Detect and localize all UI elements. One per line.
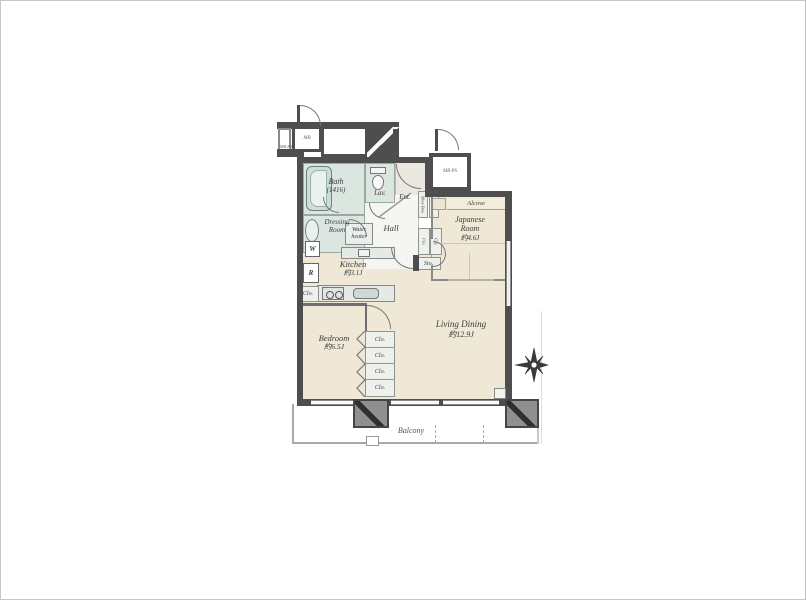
bedroom-size: 約6.5J [303, 343, 365, 352]
kitchen-size: 約3.1J [317, 269, 389, 277]
bedroom-top-wall [303, 303, 367, 306]
tatami-line-h [433, 243, 505, 244]
living-window-2 [443, 400, 499, 405]
living-jp-wall-left [431, 279, 448, 281]
kitchen-label: Kitchen 約3.1J [317, 259, 389, 277]
closet-column-cell-1-label: Clo. [375, 337, 385, 343]
balcony-label: Balcony [381, 426, 441, 435]
washer-label: W [309, 245, 315, 253]
balcony-left-edge [292, 404, 294, 444]
hall-label: Hall [367, 223, 415, 233]
wall-segment [297, 157, 303, 406]
closet-column-cell-4-label: Clo. [375, 385, 385, 391]
dressing-line2: Room [309, 226, 365, 234]
jp-left-wall-lower [431, 265, 433, 281]
closet-column-cell-3: Clo. [365, 363, 395, 380]
pillar-right [505, 399, 539, 428]
closet-column-cell-2-label: Clo. [375, 353, 385, 359]
refrigerator-label: R [309, 269, 314, 277]
alcove-label: Alcove [447, 200, 505, 208]
wall-segment [425, 191, 512, 197]
closet-column-cell-3-label: Clo. [375, 369, 385, 375]
utility-box-b [321, 126, 368, 157]
wall-segment [297, 157, 399, 163]
kitchen-name: Kitchen [317, 259, 389, 269]
hall-closet-cell-1-label: Clo. [422, 238, 427, 246]
bedroom-window [311, 400, 353, 405]
kitchen-sink-icon [353, 288, 379, 299]
ac-unit-box [494, 388, 506, 399]
meter-box-pipe-space-room: MB·PS [429, 153, 471, 191]
door-arc-utility [300, 105, 321, 126]
entrance-label: Ent. [389, 193, 421, 201]
bath-label: Bath (1416) [309, 177, 363, 195]
meter-box-label: MB [303, 136, 310, 142]
meter-box-pipe-space-label: MB·PS [443, 169, 457, 175]
sliding-door-line [447, 279, 495, 281]
hall-right-wall-stub [413, 255, 419, 271]
floor-plan-canvas: W Water heater R Clo. Shoe Box Clo. Clo.… [0, 0, 806, 600]
closet-column-cell-2: Clo. [365, 347, 395, 364]
stove-icon [322, 287, 344, 300]
japanese-line1: Japanese [437, 215, 503, 224]
japanese-size: 約4.6J [437, 234, 503, 242]
pillar-left [353, 399, 389, 428]
kitchen-upper-sink-icon [358, 249, 370, 257]
shoe-box-label: Shoe Box [421, 196, 426, 213]
closet-column-cell-4: Clo. [365, 379, 395, 397]
jp-left-wall-upper [431, 197, 433, 239]
hall-closet-cell-1: Clo. [418, 228, 430, 255]
tatami-line-v [469, 253, 470, 281]
living-size: 約12.9J [409, 330, 513, 339]
living-dining-label: Living Dining 約12.9J [409, 319, 513, 339]
dressing-room-label: Dressing Room [309, 218, 365, 235]
dressing-line1: Dressing [309, 218, 365, 226]
wall-segment [277, 149, 304, 157]
door-arc-meter-box [438, 129, 459, 150]
alcove-side-cell [432, 198, 446, 210]
closet-column-cell-1: Clo. [365, 331, 395, 348]
bedroom-label: Bedroom 約6.5J [303, 333, 365, 352]
balcony-drain-post [366, 436, 379, 446]
bath-size: (1416) [309, 186, 363, 194]
bath-name: Bath [309, 177, 363, 186]
compass-icon [514, 342, 552, 388]
living-window-1 [391, 400, 439, 405]
balcony-railing [292, 442, 539, 444]
balcony-partition-dash-2 [483, 425, 484, 443]
japanese-room-label: Japanese Room 約4.6J [437, 215, 503, 242]
balcony-right-edge [537, 428, 539, 444]
closet-kitchen-side-label: Clo. [303, 291, 313, 297]
living-name: Living Dining [409, 319, 513, 330]
living-jp-wall-right [494, 279, 505, 281]
japanese-line2: Room [437, 224, 503, 233]
side-window [506, 241, 511, 306]
washer-box: W [305, 241, 320, 257]
wall-segment [395, 157, 431, 163]
toilet-tank-icon [370, 167, 386, 174]
